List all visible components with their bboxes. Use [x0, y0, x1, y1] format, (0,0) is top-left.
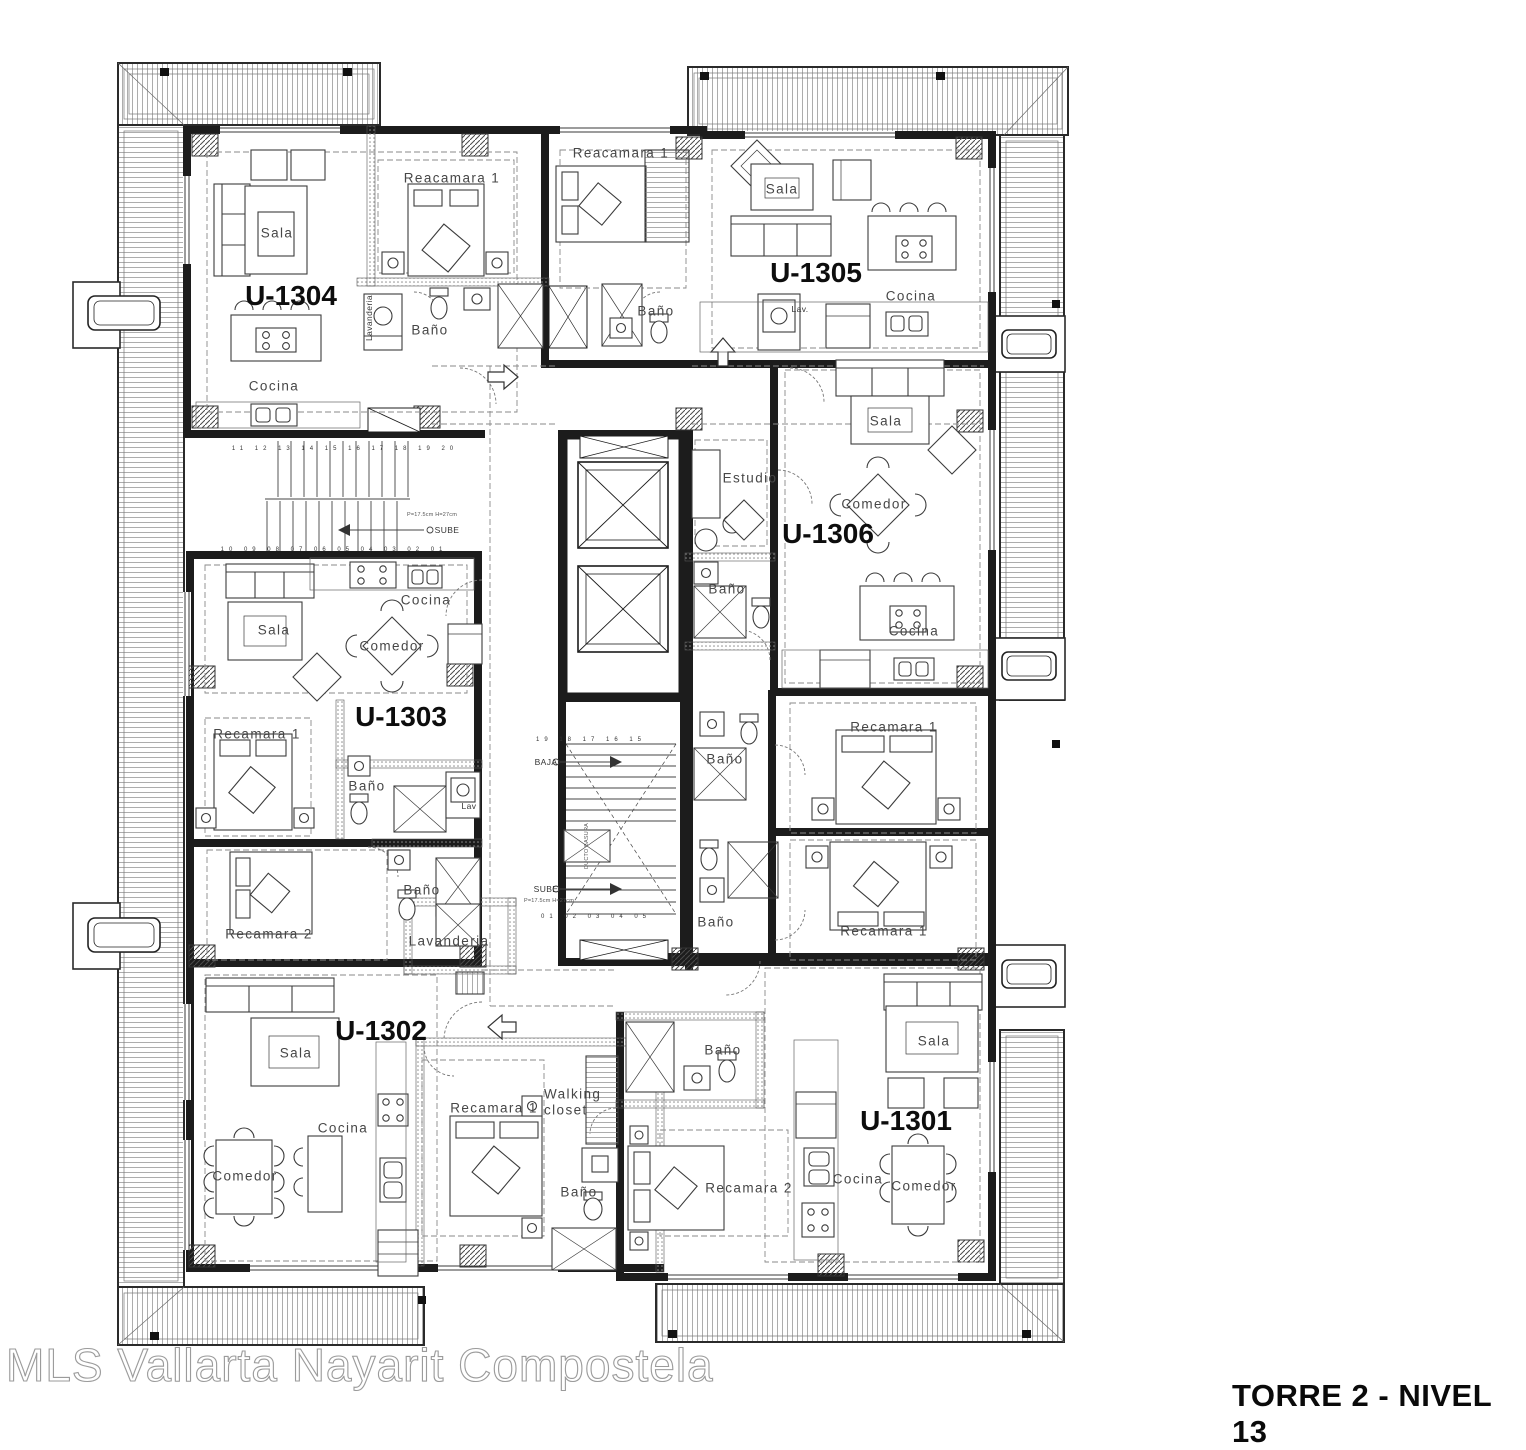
floor-plan-drawing [0, 0, 1526, 1431]
room-label: Comedor [212, 1169, 277, 1184]
stair-label: SUBE [435, 525, 460, 535]
room-label: Recamara 1 [840, 924, 928, 939]
room-label: Reacamara 1 [404, 171, 500, 186]
room-label: Reacamara 1 [573, 146, 669, 161]
room-label: Recamara 2 [225, 927, 313, 942]
room-label: Recamara 1 [213, 727, 301, 742]
room-label: Sala [766, 182, 799, 197]
room-label: Recamara 1 [450, 1101, 538, 1116]
unit-label-u1304: U-1304 [245, 280, 337, 312]
room-label: Baño [560, 1185, 597, 1200]
room-label: Sala [870, 414, 903, 429]
stair-icon-emergency [553, 744, 676, 914]
room-label: Lavanderia [409, 934, 490, 949]
room-label: Sala [918, 1034, 951, 1049]
sheet-title: TORRE 2 - NIVEL 13 [1232, 1378, 1526, 1450]
stair-label: BAJA [535, 757, 558, 767]
room-label: Cocina [833, 1172, 883, 1187]
room-label: Baño [403, 883, 440, 898]
room-label: Sala [261, 226, 294, 241]
room-label: Recamara 1 [850, 720, 938, 735]
room-label: Baño [637, 304, 674, 319]
room-label: Lavanderia [364, 295, 374, 341]
room-label: Cocina [249, 379, 299, 394]
room-label: Cocina [401, 593, 451, 608]
elevator-icon [368, 286, 680, 960]
stair-icon-main [265, 441, 433, 551]
unit-label-u1301: U-1301 [860, 1105, 952, 1137]
room-label: Comedor [841, 497, 906, 512]
unit-label-u1306: U-1306 [782, 518, 874, 550]
shaft-label: DUCTO BASURA [584, 823, 590, 869]
room-label: Sala [258, 623, 291, 638]
room-label: Sala [280, 1046, 313, 1061]
stair-note: P=17.5cm H=27cm [407, 512, 457, 518]
stair-label: SUBE [534, 884, 559, 894]
room-label: Lav. [791, 304, 808, 314]
room-label: Baño [348, 779, 385, 794]
room-label: Cocina [889, 624, 939, 639]
room-label: Baño [411, 323, 448, 338]
tread-numbers: 19 18 17 16 15 [536, 737, 646, 743]
floorplan-page: { "header": { "title": "TORRE 2 - NIVEL … [0, 0, 1526, 1431]
room-label: Cocina [886, 289, 936, 304]
room-label: Baño [704, 1043, 741, 1058]
room-label: Cocina [318, 1121, 368, 1136]
tread-numbers: 11 12 13 14 15 16 17 18 19 20 [232, 446, 458, 452]
tread-numbers: 10 09 08 07 06 05 04 03 02 01 [221, 547, 448, 553]
room-label: Comedor [891, 1179, 956, 1194]
room-label: Estudio [723, 471, 778, 486]
room-label: Baño [706, 752, 743, 767]
room-label: Lav [462, 801, 477, 811]
unit-label-u1305: U-1305 [770, 257, 862, 289]
watermark-text: MLS Vallarta Nayarit Compostela [6, 1338, 714, 1392]
unit-label-u1302: U-1302 [335, 1015, 427, 1047]
room-label: Baño [708, 582, 745, 597]
stair-note: P=17.5cm H=27cm [524, 898, 574, 904]
tread-numbers: 01 02 03 04 05 [541, 914, 651, 920]
unit-label-u1303: U-1303 [355, 701, 447, 733]
room-label: Baño [697, 915, 734, 930]
room-label: Comedor [359, 639, 424, 654]
room-label: Walking closet [544, 1086, 610, 1117]
room-label: Recamara 2 [705, 1181, 793, 1196]
